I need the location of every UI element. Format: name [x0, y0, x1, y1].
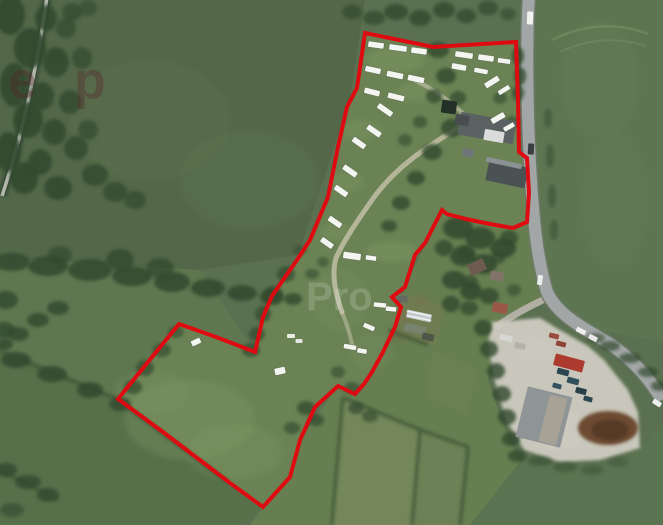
tree: [42, 119, 66, 145]
watermark-text: Pro: [306, 275, 373, 319]
tree: [284, 422, 300, 434]
tree: [62, 3, 82, 21]
tree: [43, 47, 69, 77]
tree: [442, 296, 460, 312]
watermark-text: e: [8, 52, 37, 110]
tree: [458, 245, 474, 259]
tree: [413, 116, 427, 128]
tree: [363, 11, 385, 25]
tree: [436, 68, 456, 84]
tree: [548, 184, 556, 208]
tree: [600, 341, 620, 351]
tree: [478, 1, 498, 15]
tree: [1, 352, 31, 368]
tree: [146, 258, 174, 278]
tree: [47, 301, 69, 315]
vehicle: [287, 334, 295, 338]
tree: [480, 341, 498, 357]
tree: [77, 382, 103, 398]
tree: [48, 246, 72, 264]
caravan: [373, 302, 386, 308]
tree: [407, 171, 425, 185]
tree: [608, 457, 628, 467]
tree: [392, 196, 410, 210]
tree: [398, 134, 412, 146]
tree: [550, 220, 558, 240]
tree: [79, 0, 97, 16]
tree: [528, 456, 552, 466]
tree: [500, 230, 518, 246]
aerial-photo: Proep: [0, 0, 663, 525]
tree: [508, 450, 526, 462]
tree: [384, 4, 408, 20]
ground-patch: [180, 130, 320, 230]
tree: [491, 252, 505, 264]
tree: [487, 363, 505, 379]
ground-patch: [560, 20, 640, 140]
tree: [581, 465, 603, 475]
vehicle: [527, 11, 533, 24]
tree: [546, 144, 554, 168]
tree: [422, 144, 442, 160]
tree: [342, 5, 362, 19]
tree: [619, 353, 641, 363]
tree: [456, 9, 476, 23]
tree: [0, 503, 24, 517]
tree: [28, 149, 52, 175]
tree: [35, 5, 57, 31]
tree: [37, 366, 67, 382]
tree: [426, 89, 442, 103]
tree: [331, 366, 345, 378]
tree: [553, 462, 577, 472]
tree: [381, 220, 397, 232]
tree: [227, 285, 257, 301]
ground-patch: [580, 130, 650, 270]
tree: [124, 191, 146, 209]
tree: [44, 176, 72, 200]
tree: [460, 301, 478, 315]
vehicle: [296, 339, 303, 343]
watermark-text: p: [74, 52, 106, 110]
tree: [409, 10, 431, 26]
tree: [106, 249, 134, 271]
aerial-map: Proep: [0, 0, 663, 525]
tree: [348, 402, 364, 414]
tree: [500, 8, 516, 20]
tree: [435, 240, 453, 256]
building: [490, 271, 504, 282]
tree: [479, 288, 499, 304]
tree: [64, 136, 88, 160]
caravan: [385, 306, 396, 312]
tree: [493, 386, 511, 402]
yard-heap-core: [591, 419, 628, 440]
ground-patch: [187, 424, 283, 480]
tree: [15, 475, 41, 489]
tree: [317, 257, 329, 267]
tree: [37, 488, 59, 502]
tree: [474, 320, 492, 336]
tree: [462, 275, 478, 289]
tree: [191, 279, 225, 297]
ground-patch: [410, 294, 430, 306]
tree: [284, 293, 302, 305]
tree: [68, 259, 112, 281]
tree: [433, 2, 455, 18]
tree: [638, 367, 658, 377]
tree: [27, 313, 49, 327]
tree: [507, 284, 521, 296]
tree: [56, 18, 76, 38]
building: [441, 100, 458, 115]
tree: [7, 327, 29, 341]
tree: [544, 108, 552, 128]
tree: [362, 410, 378, 422]
tree: [103, 182, 127, 202]
vehicle: [528, 143, 535, 154]
tree: [78, 120, 98, 140]
tree: [498, 409, 516, 425]
tree: [82, 164, 108, 186]
